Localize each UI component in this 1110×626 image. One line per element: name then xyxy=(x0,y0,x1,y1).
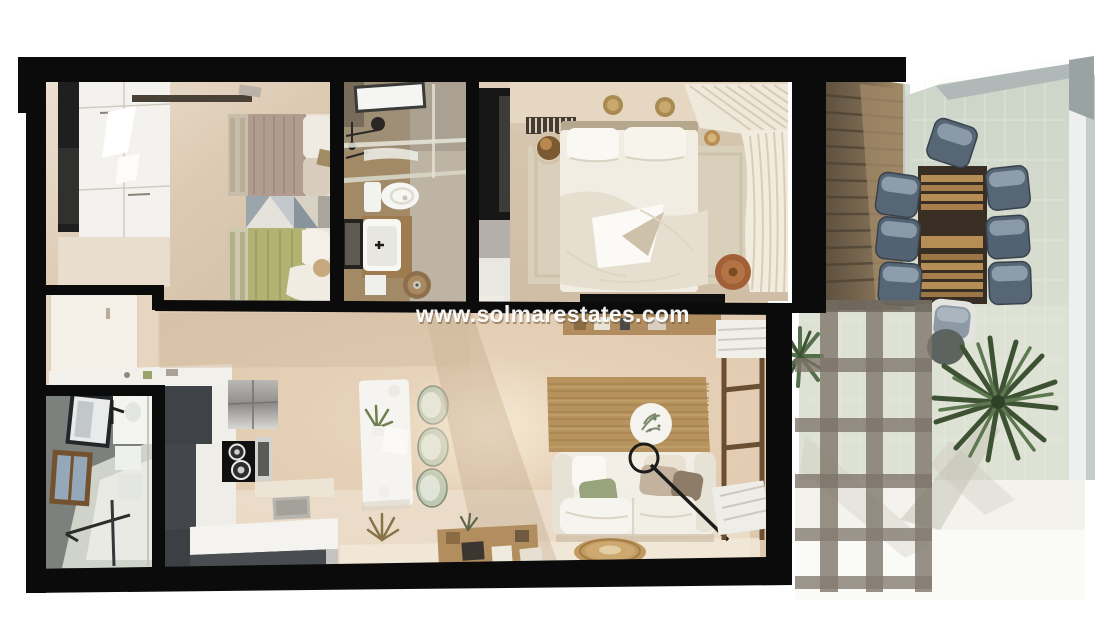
svg-text:www.solmarestates.com: www.solmarestates.com xyxy=(415,301,690,327)
